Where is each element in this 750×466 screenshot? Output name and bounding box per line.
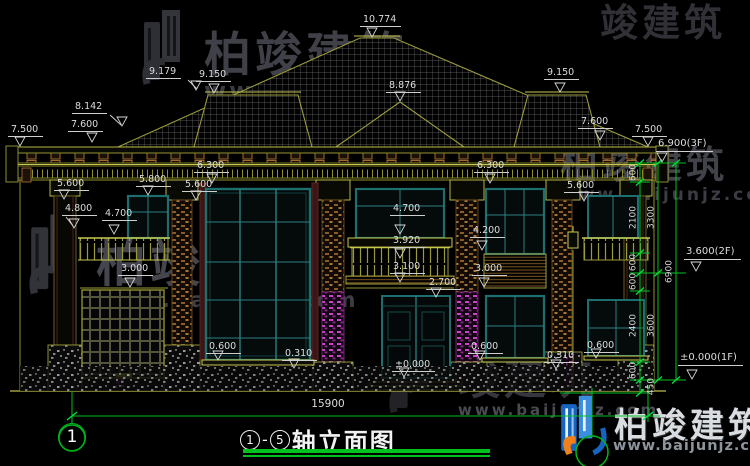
elevation-label: 3.100: [390, 261, 425, 274]
axis-bubble-end: 5: [270, 430, 290, 450]
dim-text: 600: [629, 151, 640, 195]
elevation-label: 3.000: [472, 263, 507, 276]
elevation-label: 8.876: [386, 80, 421, 93]
elevation-label: 8.142: [72, 101, 107, 114]
title-underline-thick: [243, 449, 490, 453]
elevation-label: 9.179: [146, 66, 181, 79]
dim-text: 600: [629, 349, 640, 393]
elevation-label: 10.774: [360, 14, 401, 27]
elevation-label: 4.700: [102, 208, 137, 221]
dim-text: 3300: [647, 196, 658, 240]
elevation-label: 9.150: [544, 67, 579, 80]
elevation-label: 7.500: [632, 124, 667, 137]
floor-level-label: 3.600(2F): [684, 246, 741, 260]
floor-level-label: ±0.000(1F): [678, 352, 743, 366]
elevation-label: 0.310: [282, 348, 317, 361]
axis-bubble-start: 1: [240, 430, 260, 450]
elevation-label: 5.600: [54, 178, 89, 191]
roof: [118, 36, 648, 147]
elevation-label: 5.600: [564, 180, 599, 193]
cornice: [6, 146, 668, 182]
base: [20, 366, 654, 391]
elevation-label: 3.920: [390, 235, 425, 248]
elevation-label: 0.310: [544, 350, 579, 363]
axis-grid-bubble-1: 1: [58, 423, 86, 451]
elevation-label: 2.700: [426, 277, 461, 290]
elevation-label: 7.500: [8, 124, 43, 137]
elevation-label: 5.800: [136, 174, 171, 187]
elevation-label: ±0.000: [392, 359, 435, 372]
cad-elevation-screenshot: 柏竣建筑 www.baijunjz.com 竣建筑 柏竣建筑 www.baiju…: [0, 0, 750, 466]
dim-text: 450: [647, 365, 658, 409]
elevation-label: 7.600: [578, 116, 613, 129]
elevation-label: 0.600: [206, 341, 241, 354]
elevation-label: 6.300: [474, 160, 509, 173]
dim-text: 600: [629, 260, 640, 304]
elevation-label: 4.200: [470, 225, 505, 238]
elevation-label: 6.300: [194, 160, 229, 173]
dim-text: 2100: [629, 196, 640, 240]
title-underline-thin: [243, 455, 490, 457]
axis-range-dash: -: [262, 430, 268, 449]
elevation-label: 4.800: [62, 203, 97, 216]
dim-text: 3600: [647, 304, 658, 348]
dim-text: 2400: [629, 304, 640, 348]
floor-level-label: 6.900(3F): [656, 138, 713, 152]
elevation-label: 0.600: [468, 341, 503, 354]
elevation-label: 7.600: [68, 119, 103, 132]
elevation-label: 5.600: [182, 179, 217, 192]
elevation-label: 0.600: [584, 340, 619, 353]
dim-text: 6900: [665, 250, 676, 294]
total-width-dim: 15900: [296, 398, 360, 410]
elevation-label: 3.000: [118, 263, 153, 276]
elevation-label: 4.700: [390, 203, 425, 216]
elevation-label: 9.150: [196, 69, 231, 82]
